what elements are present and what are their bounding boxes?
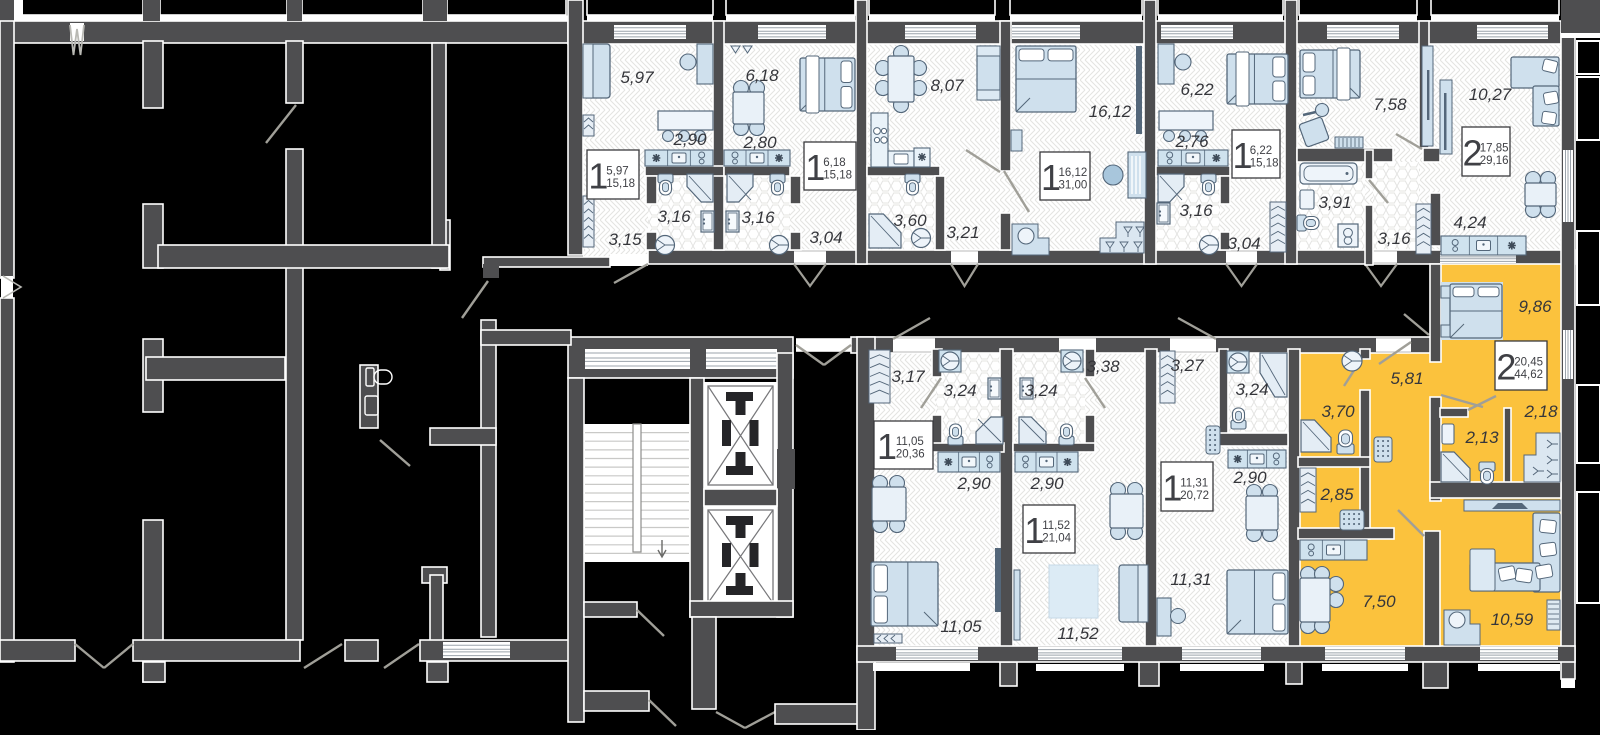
svg-text:11,05: 11,05 (896, 436, 924, 448)
svg-text:2,80: 2,80 (742, 133, 777, 152)
svg-text:3,16: 3,16 (741, 208, 775, 227)
svg-text:2,85: 2,85 (1319, 485, 1354, 504)
svg-text:2,18: 2,18 (1523, 402, 1558, 421)
svg-text:10,59: 10,59 (1491, 610, 1534, 629)
svg-text:9,86: 9,86 (1518, 297, 1552, 316)
svg-text:3,21: 3,21 (946, 223, 979, 242)
svg-text:3,38: 3,38 (1086, 357, 1120, 376)
svg-text:11,52: 11,52 (1057, 624, 1099, 643)
svg-text:5,97: 5,97 (606, 166, 628, 178)
svg-text:3,24: 3,24 (1235, 380, 1268, 399)
svg-text:3,70: 3,70 (1321, 402, 1355, 421)
svg-text:29,16: 29,16 (1480, 155, 1509, 167)
svg-text:8,07: 8,07 (930, 76, 964, 95)
svg-text:2,90: 2,90 (956, 474, 991, 493)
svg-text:16,12: 16,12 (1089, 102, 1132, 121)
svg-text:3,16: 3,16 (1179, 201, 1213, 220)
svg-text:4,24: 4,24 (1453, 213, 1486, 232)
svg-text:21,04: 21,04 (1042, 532, 1071, 544)
svg-text:3,15: 3,15 (608, 230, 642, 249)
svg-text:6,22: 6,22 (1250, 145, 1272, 157)
svg-text:11,52: 11,52 (1042, 520, 1070, 532)
svg-text:3,04: 3,04 (809, 228, 842, 247)
svg-text:6,18: 6,18 (745, 66, 779, 85)
svg-text:15,18: 15,18 (823, 169, 852, 181)
svg-text:1: 1 (877, 426, 897, 467)
svg-text:20,36: 20,36 (896, 448, 925, 460)
svg-text:15,18: 15,18 (1250, 157, 1279, 169)
svg-text:3,60: 3,60 (893, 211, 927, 230)
svg-text:2,76: 2,76 (1174, 132, 1209, 151)
svg-text:11,31: 11,31 (1180, 478, 1208, 490)
svg-text:5,81: 5,81 (1390, 369, 1423, 388)
svg-text:3,91: 3,91 (1318, 193, 1351, 212)
svg-text:2,90: 2,90 (1029, 474, 1064, 493)
svg-text:11,31: 11,31 (1170, 570, 1211, 589)
svg-text:5,97: 5,97 (620, 68, 654, 87)
svg-text:20,45: 20,45 (1514, 357, 1543, 369)
svg-text:15,18: 15,18 (606, 178, 635, 190)
svg-text:2,90: 2,90 (1232, 468, 1267, 487)
svg-text:2,90: 2,90 (672, 130, 707, 149)
svg-text:10,27: 10,27 (1469, 85, 1512, 104)
svg-text:31,00: 31,00 (1059, 179, 1088, 191)
svg-text:3,16: 3,16 (1377, 229, 1411, 248)
svg-text:16,12: 16,12 (1059, 167, 1088, 179)
svg-text:3,27: 3,27 (1170, 356, 1204, 375)
svg-text:3,17: 3,17 (891, 367, 925, 386)
svg-text:7,50: 7,50 (1362, 592, 1396, 611)
svg-text:11,05: 11,05 (940, 617, 982, 636)
svg-text:6,22: 6,22 (1180, 80, 1214, 99)
svg-text:17,85: 17,85 (1480, 143, 1509, 155)
svg-text:3,16: 3,16 (657, 207, 691, 226)
svg-text:2,13: 2,13 (1464, 428, 1499, 447)
svg-text:7,58: 7,58 (1373, 95, 1407, 114)
svg-text:3,24: 3,24 (943, 381, 976, 400)
svg-text:20,72: 20,72 (1180, 490, 1209, 502)
svg-text:6,18: 6,18 (823, 157, 845, 169)
svg-text:3,24: 3,24 (1024, 381, 1057, 400)
svg-text:44,62: 44,62 (1514, 369, 1543, 381)
svg-text:3,04: 3,04 (1227, 234, 1260, 253)
